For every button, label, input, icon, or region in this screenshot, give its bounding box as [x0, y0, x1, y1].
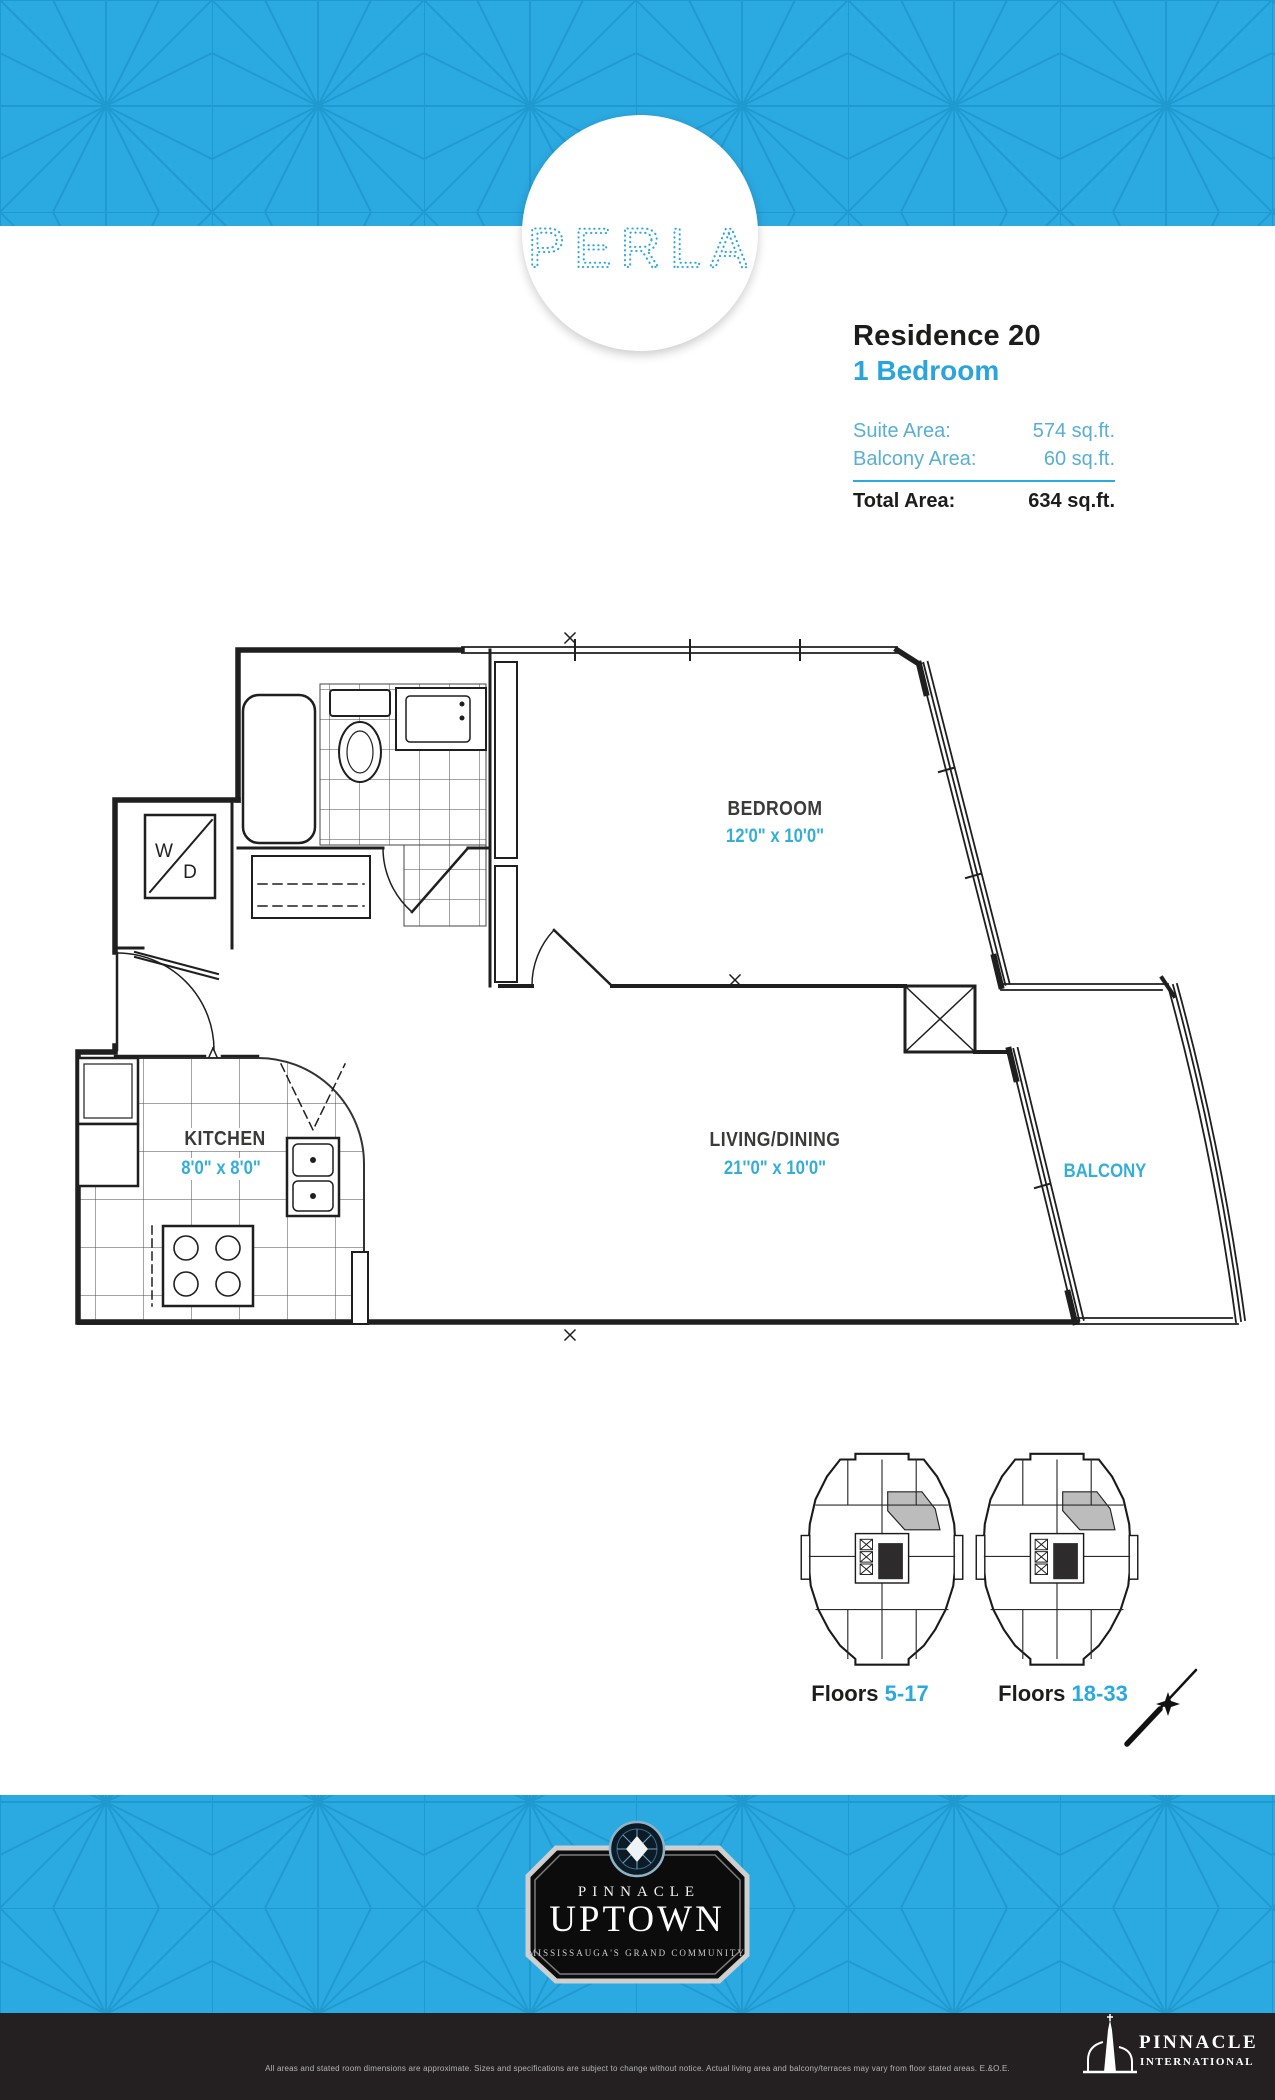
residence-subtitle: 1 Bedroom — [853, 355, 1115, 387]
badge-medallion-icon — [610, 1822, 664, 1876]
perla-logo-circle: PERLA — [522, 115, 758, 351]
total-area-row: Total Area: 634 sq.ft. — [853, 490, 1115, 513]
kitchen-dimensions: 8'0" x 8'0" — [170, 1158, 272, 1180]
kitchen-label: KITCHEN — [173, 1128, 277, 1151]
keyplan-floors-18-33 — [976, 1454, 1138, 1665]
badge-tagline-text: MISSISSAUGA'S GRAND COMMUNITY — [528, 1948, 746, 1958]
pinnacle-international-name: PINNACLE — [1139, 2032, 1258, 2054]
living-dining-label: LIVING/DINING — [701, 1129, 850, 1152]
pinnacle-international-sub: INTERNATIONAL — [1140, 2056, 1254, 2068]
dryer-letter: D — [183, 862, 197, 883]
floorplan-sheet: W D PERLA Residence 20 1 Bedroom — [0, 0, 1275, 2100]
suite-area-value: 574 sq.ft. — [1033, 417, 1115, 445]
washer-letter: W — [155, 841, 173, 862]
area-divider — [853, 480, 1115, 482]
total-area-value: 634 sq.ft. — [1028, 490, 1115, 513]
keyplan-floors-5-17 — [801, 1454, 963, 1665]
suite-area-label: Suite Area: — [853, 417, 951, 445]
perla-logo-text: PERLA — [528, 216, 757, 279]
north-arrow-icon — [1127, 1670, 1196, 1744]
badge-name-text: UPTOWN — [549, 1898, 725, 1941]
total-area-label: Total Area: — [853, 490, 955, 513]
suite-area-row: Suite Area: 574 sq.ft. — [853, 417, 1115, 445]
bedroom-label: BEDROOM — [721, 798, 829, 821]
balcony-area-value: 60 sq.ft. — [1044, 445, 1115, 473]
balcony-label: BALCONY — [1058, 1161, 1152, 1183]
floorplan-drawing — [78, 633, 1245, 1340]
disclaimer-text: All areas and stated room dimensions are… — [0, 2064, 1275, 2073]
floors-5-17-caption: Floors 5-17 — [811, 1681, 928, 1707]
floors-18-33-caption: Floors 18-33 — [998, 1681, 1128, 1707]
footer-bar — [0, 2013, 1275, 2100]
residence-info: Residence 20 1 Bedroom Suite Area: 574 s… — [853, 320, 1115, 513]
living-dining-dimensions: 21''0" x 10'0" — [717, 1158, 833, 1180]
residence-title: Residence 20 — [853, 320, 1115, 353]
balcony-area-label: Balcony Area: — [853, 445, 976, 473]
balcony-area-row: Balcony Area: 60 sq.ft. — [853, 445, 1115, 473]
bedroom-dimensions: 12'0" x 10'0" — [719, 826, 831, 848]
